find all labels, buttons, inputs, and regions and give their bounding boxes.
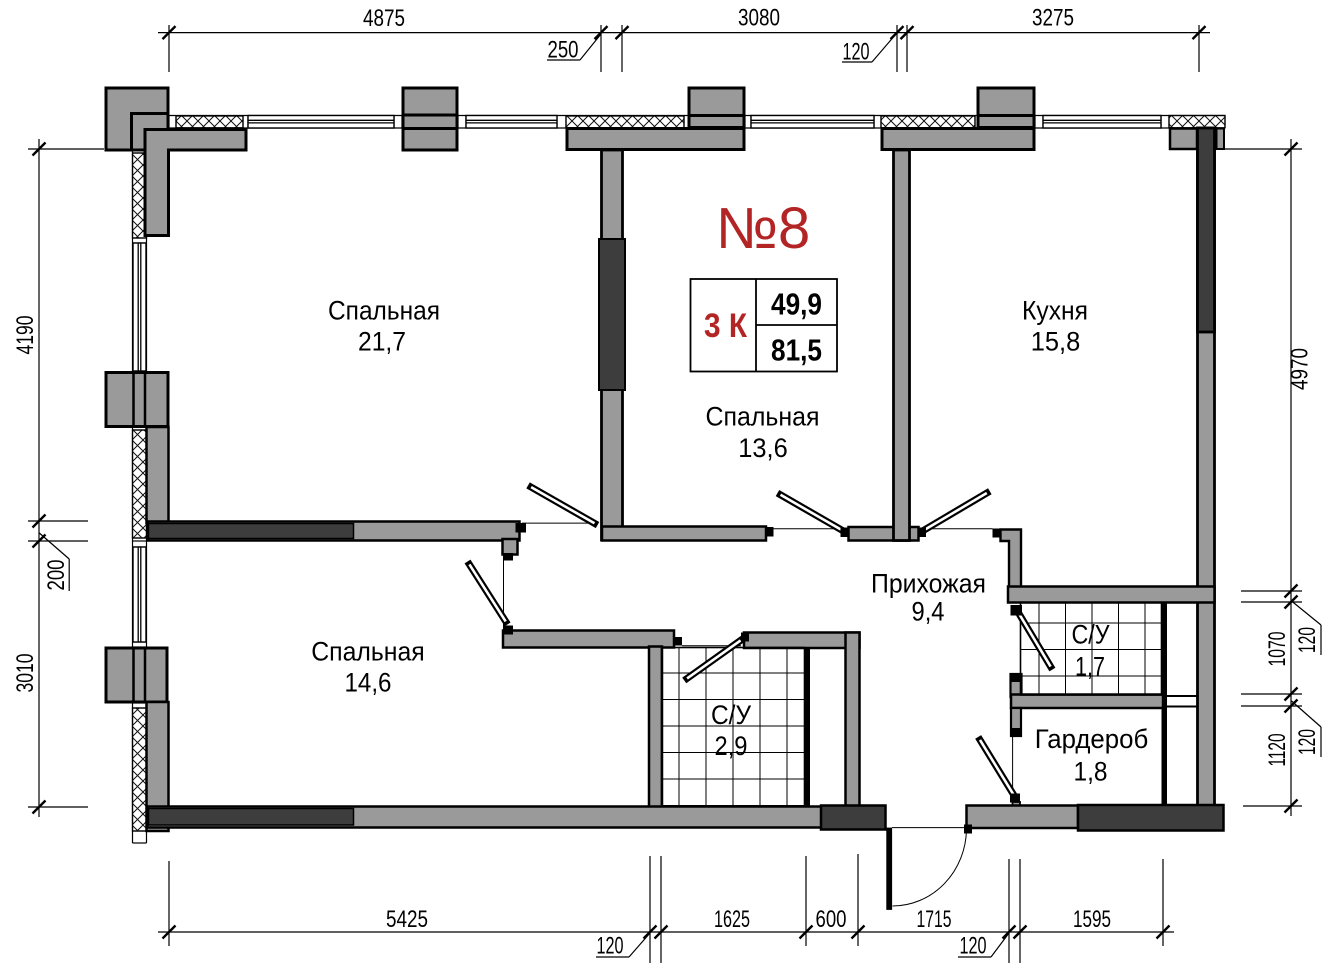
svg-text:1625: 1625 xyxy=(714,906,750,933)
svg-text:Спальная: Спальная xyxy=(311,637,425,667)
svg-text:14,6: 14,6 xyxy=(345,668,392,698)
svg-text:200: 200 xyxy=(43,560,70,591)
svg-text:5425: 5425 xyxy=(386,906,428,933)
svg-text:1,8: 1,8 xyxy=(1074,757,1108,787)
svg-text:21,7: 21,7 xyxy=(358,327,406,357)
svg-text:4190: 4190 xyxy=(12,316,39,355)
svg-text:Прихожая: Прихожая xyxy=(871,569,986,599)
svg-text:120: 120 xyxy=(1294,729,1321,755)
svg-text:1715: 1715 xyxy=(917,906,952,933)
svg-text:Спальная: Спальная xyxy=(328,296,440,326)
svg-text:3 К: 3 К xyxy=(704,307,747,345)
svg-text:1595: 1595 xyxy=(1073,906,1111,933)
svg-text:3080: 3080 xyxy=(738,5,780,32)
svg-text:3275: 3275 xyxy=(1032,5,1074,32)
svg-text:49,9: 49,9 xyxy=(771,287,822,322)
svg-text:2,9: 2,9 xyxy=(715,731,748,761)
svg-text:81,5: 81,5 xyxy=(771,333,822,368)
svg-text:15,8: 15,8 xyxy=(1031,327,1081,357)
svg-text:Спальная: Спальная xyxy=(706,402,820,432)
svg-text:120: 120 xyxy=(1294,627,1321,653)
svg-text:1,7: 1,7 xyxy=(1075,652,1105,682)
svg-text:С/У: С/У xyxy=(711,700,752,730)
svg-text:№8: №8 xyxy=(716,196,810,261)
svg-text:1070: 1070 xyxy=(1264,632,1291,667)
svg-text:600: 600 xyxy=(816,906,847,933)
svg-text:120: 120 xyxy=(597,933,624,960)
svg-text:120: 120 xyxy=(960,933,987,960)
svg-text:3010: 3010 xyxy=(12,654,39,693)
svg-text:Гардероб: Гардероб xyxy=(1035,724,1149,754)
svg-text:1120: 1120 xyxy=(1264,734,1291,767)
svg-text:13,6: 13,6 xyxy=(738,433,788,463)
svg-text:4875: 4875 xyxy=(363,5,405,32)
svg-text:4970: 4970 xyxy=(1287,348,1314,390)
svg-text:С/У: С/У xyxy=(1072,620,1111,650)
svg-text:Кухня: Кухня xyxy=(1022,296,1088,326)
svg-text:9,4: 9,4 xyxy=(912,597,945,627)
